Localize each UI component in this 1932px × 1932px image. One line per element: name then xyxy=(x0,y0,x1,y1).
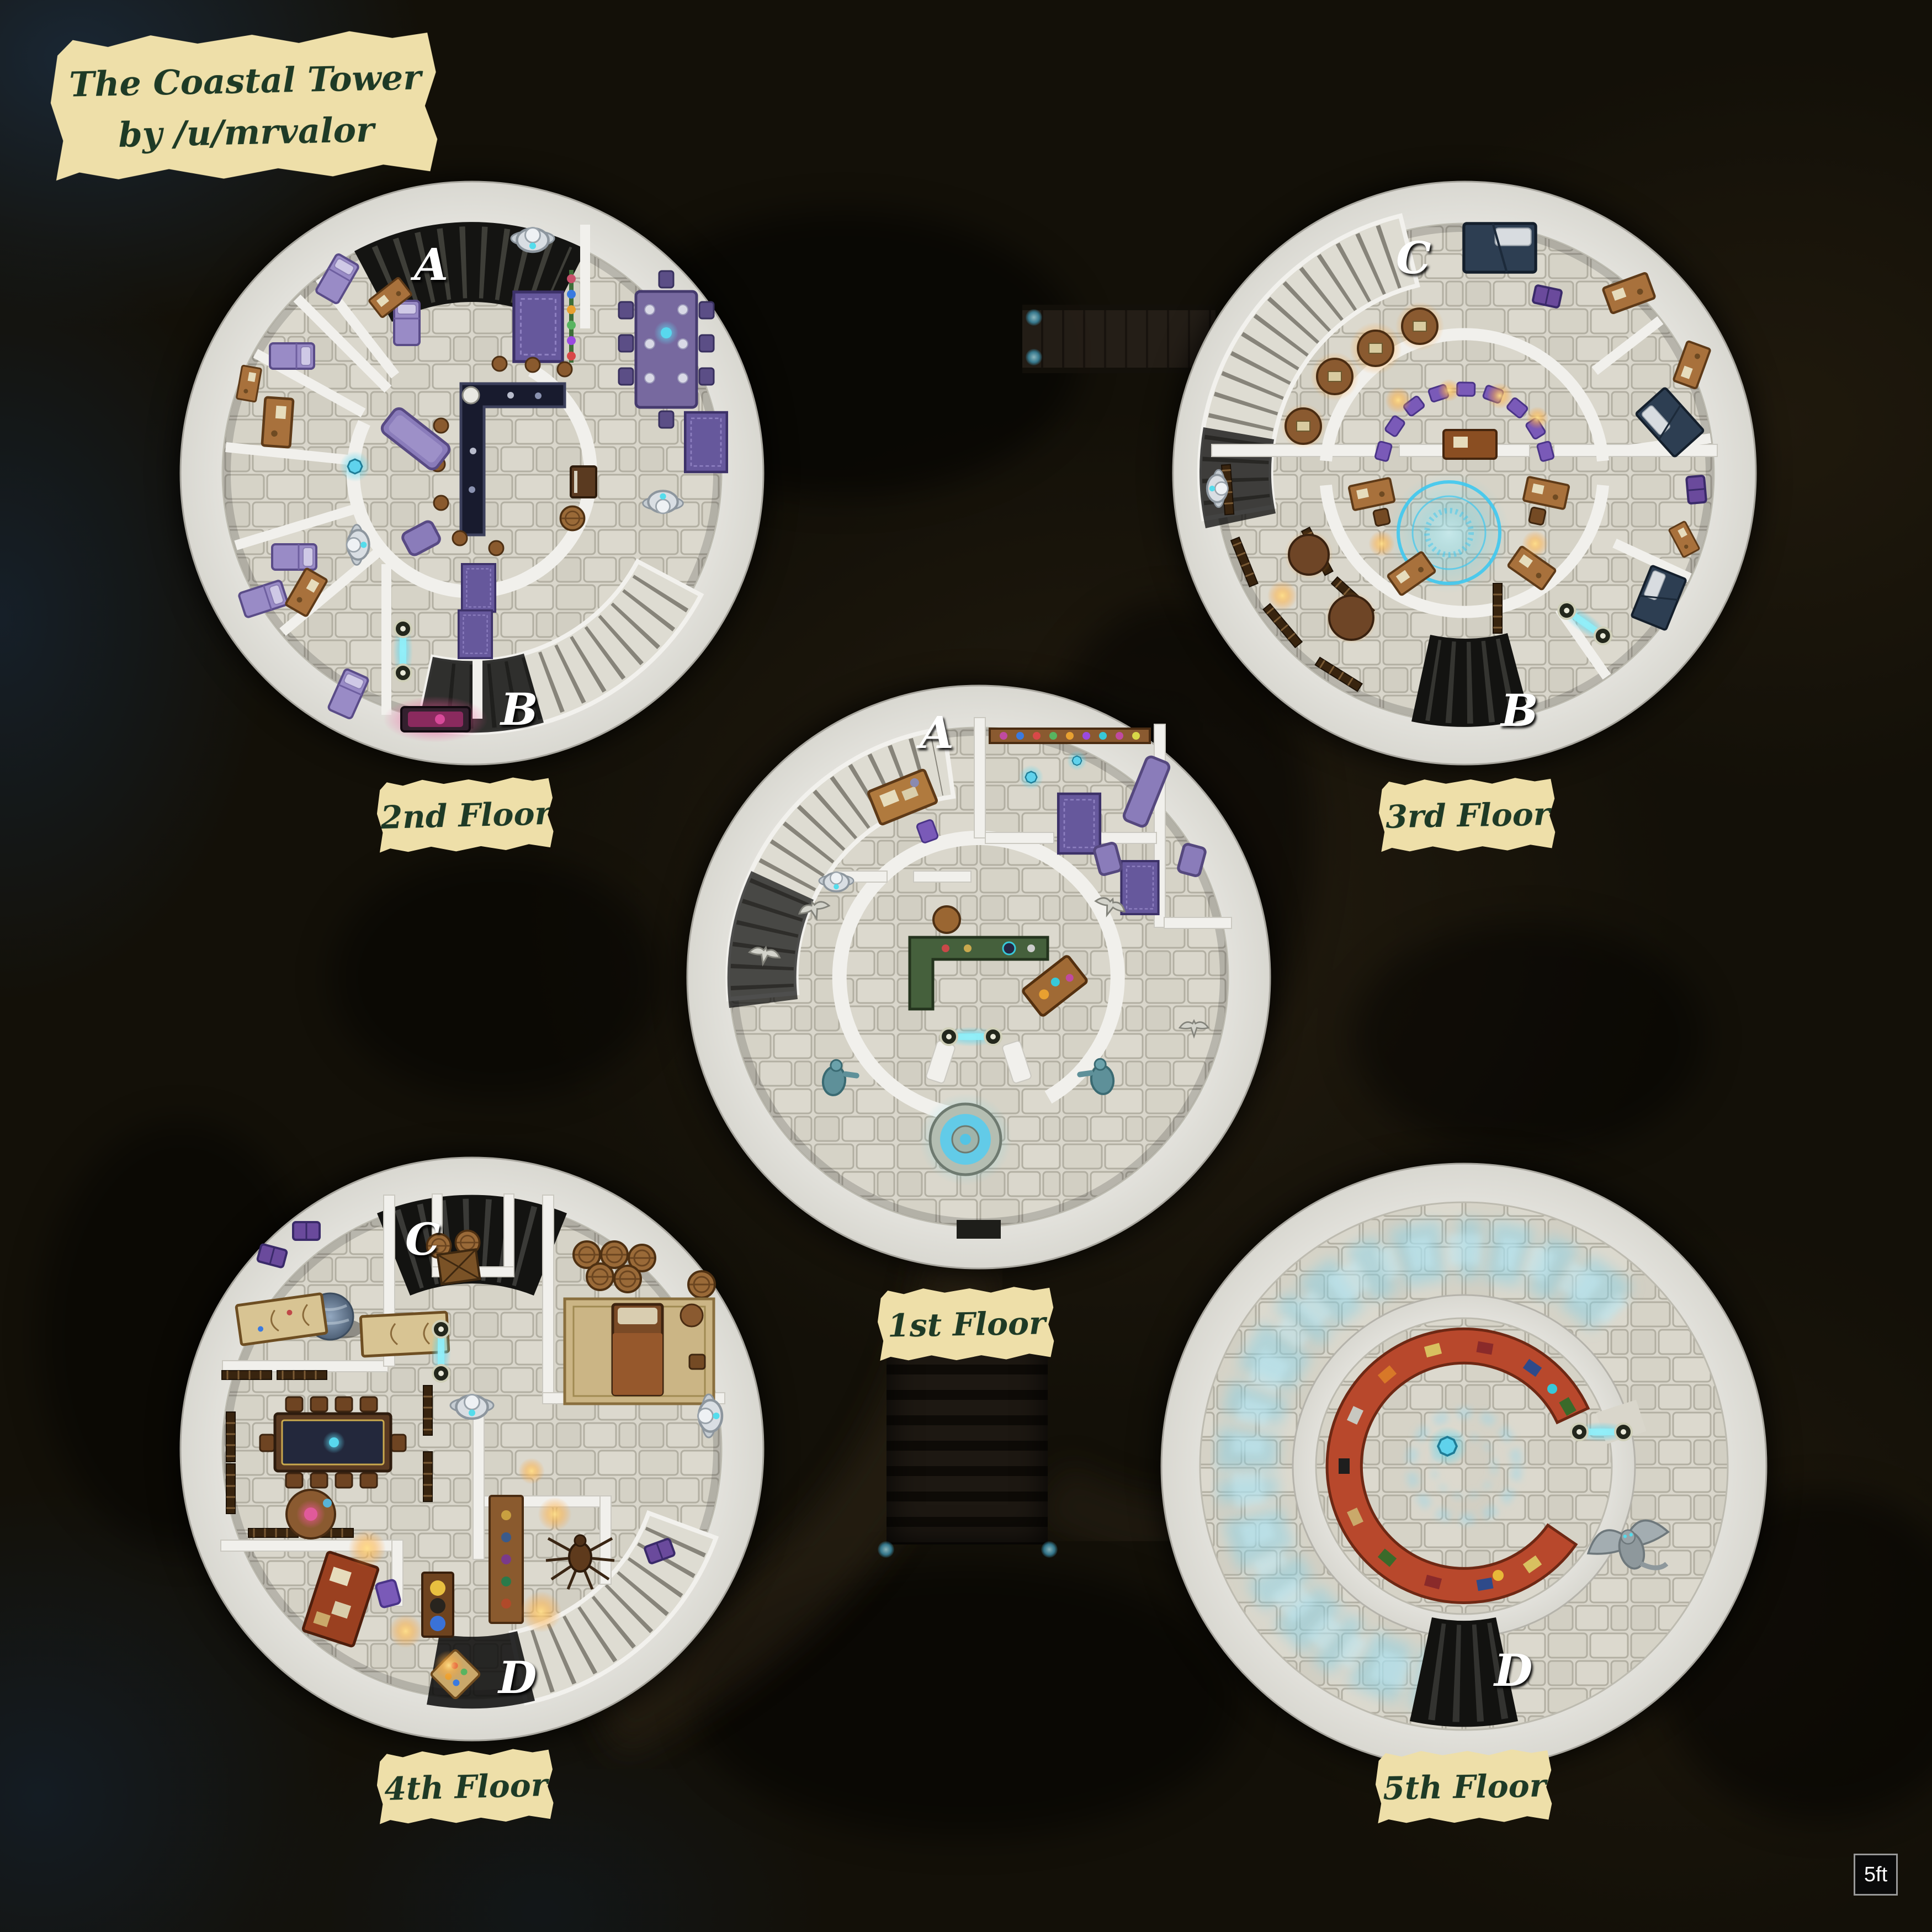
floor-label-text: 3rd Floor xyxy=(1386,795,1551,835)
floor-label-text: 5th Floor xyxy=(1383,1767,1547,1807)
rug xyxy=(462,564,495,612)
rug xyxy=(459,611,492,658)
candle-glow-icon xyxy=(538,1497,571,1531)
teleporter-icon xyxy=(393,620,413,681)
bed xyxy=(270,343,314,369)
stair-label-c: C xyxy=(405,1213,440,1265)
glowing-pink-bed xyxy=(383,696,488,742)
bookshelf xyxy=(1493,583,1502,633)
bookshelf xyxy=(248,1528,298,1537)
teleporter-icon xyxy=(431,1321,451,1382)
barrel xyxy=(587,1264,613,1290)
stair-label-d: D xyxy=(1493,1644,1532,1696)
bed xyxy=(1464,224,1536,272)
candle-glow-icon xyxy=(1267,581,1297,611)
potion-shelf xyxy=(422,1573,453,1637)
round-table xyxy=(1317,359,1352,394)
floor-label-2nd: 2nd Floor xyxy=(376,775,556,856)
entry-orb-icon xyxy=(1041,1541,1058,1558)
bed xyxy=(394,301,420,345)
rug xyxy=(1121,861,1158,914)
rug xyxy=(514,292,562,362)
desk xyxy=(262,397,294,448)
candle-glow-icon xyxy=(1368,530,1395,557)
blue-gem-icon xyxy=(1067,751,1087,771)
chair xyxy=(689,1355,705,1369)
stair-label-d: D xyxy=(497,1652,537,1703)
lecturer-desk xyxy=(1443,430,1496,459)
round-table xyxy=(1329,596,1373,640)
rug xyxy=(1058,794,1100,853)
piano xyxy=(571,466,596,497)
tower-5th-floor: D xyxy=(1144,1146,1784,1786)
stool xyxy=(526,358,540,372)
alchemy-round-table xyxy=(286,1490,335,1538)
chest xyxy=(1686,476,1706,504)
title-banner: The Coastal Tower by /u/mrvalor xyxy=(49,26,442,187)
stair-label-b: B xyxy=(1500,684,1538,736)
chest xyxy=(293,1222,320,1240)
blue-gem-icon xyxy=(1019,765,1044,790)
stool xyxy=(453,531,467,545)
map-author: by /u/mrvalor xyxy=(70,103,423,161)
gem-display-shelf xyxy=(990,729,1150,743)
candle-glow-icon xyxy=(1487,383,1513,409)
bookshelf xyxy=(226,1412,235,1462)
stool xyxy=(492,357,507,371)
candle-glow-icon xyxy=(1385,387,1411,413)
floor-label-4th: 4th Floor xyxy=(376,1747,556,1827)
bridge-orb-icon xyxy=(1026,349,1042,365)
stair-label-a: A xyxy=(916,707,954,758)
entry-door xyxy=(957,1220,1001,1239)
candle-glow-icon xyxy=(1526,407,1549,429)
barrel xyxy=(688,1271,715,1298)
battle-map: A B xyxy=(0,0,1932,1932)
bookshelf xyxy=(277,1371,327,1379)
stair-label-a: A xyxy=(410,238,448,290)
stool xyxy=(489,541,503,555)
entry-orb-icon xyxy=(878,1541,894,1558)
candle-glow-icon xyxy=(518,1458,545,1484)
floor-label-1st: 1st Floor xyxy=(877,1285,1056,1364)
barrel xyxy=(560,506,584,530)
bedroom xyxy=(565,1299,714,1404)
bed xyxy=(272,544,316,570)
bookshelf xyxy=(423,1452,432,1501)
round-table xyxy=(1358,331,1393,366)
round-table xyxy=(1286,408,1321,444)
candle-glow-icon xyxy=(434,1650,464,1680)
floor-label-5th: 5th Floor xyxy=(1375,1747,1554,1827)
candle-glow-icon xyxy=(348,1530,386,1567)
rug xyxy=(685,412,727,472)
scale-badge: 5ft xyxy=(1854,1854,1898,1896)
bookshelf xyxy=(423,1386,432,1435)
candle-glow-icon xyxy=(389,1614,422,1648)
stool xyxy=(558,362,572,376)
floor-label-3rd: 3rd Floor xyxy=(1378,776,1557,855)
teleporter-icon xyxy=(941,1027,1001,1047)
floor-label-text: 2nd Floor xyxy=(380,794,552,836)
stool xyxy=(434,496,448,510)
bridge-orb-icon xyxy=(1026,309,1042,326)
candle-glow-icon xyxy=(521,1591,562,1633)
bookshelf xyxy=(226,1464,235,1514)
tower-4th-floor: C D xyxy=(163,1140,781,1758)
chair xyxy=(1373,508,1390,527)
bookshelf xyxy=(222,1371,272,1379)
floor-label-text: 1st Floor xyxy=(887,1304,1045,1344)
round-table xyxy=(1289,535,1329,575)
fountain-icon xyxy=(919,1093,1012,1186)
stool xyxy=(434,418,448,433)
crate xyxy=(438,1249,480,1284)
map-title: The Coastal Tower xyxy=(68,51,422,110)
floor-label-text: 4th Floor xyxy=(384,1766,548,1808)
alchemy-bench xyxy=(490,1496,523,1623)
candle-glow-icon xyxy=(1438,379,1461,402)
round-table xyxy=(1402,309,1437,344)
teleporter-icon xyxy=(1571,1422,1632,1442)
barrel xyxy=(614,1266,641,1292)
blue-gem-icon xyxy=(339,451,370,482)
candle-glow-icon xyxy=(1522,530,1548,557)
chair xyxy=(1528,507,1546,526)
stair-label-b: B xyxy=(500,683,538,735)
stair-label-c: C xyxy=(1396,232,1431,284)
scale-label: 5ft xyxy=(1864,1863,1887,1887)
blue-gem-icon xyxy=(1427,1426,1468,1467)
